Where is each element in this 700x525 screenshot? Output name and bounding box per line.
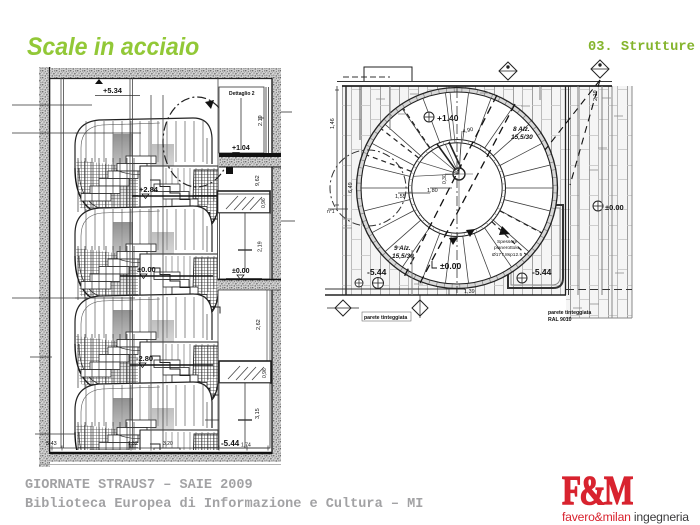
svg-text:±0.00: ±0.00: [137, 265, 156, 274]
svg-text:2.19: 2.19: [258, 115, 264, 126]
svg-text:-5.44: -5.44: [221, 439, 240, 448]
svg-text:5,43: 5,43: [46, 441, 57, 447]
svg-text:+2.84: +2.84: [139, 185, 159, 194]
svg-text:2,62: 2,62: [256, 319, 262, 330]
svg-text:0,30: 0,30: [442, 174, 448, 184]
svg-text:±0.00: ±0.00: [440, 261, 461, 271]
svg-text:1,46: 1,46: [330, 118, 336, 129]
svg-text:3,20: 3,20: [163, 441, 173, 447]
svg-text:3,15: 3,15: [255, 408, 261, 419]
svg-text:Dettaglio 2: Dettaglio 2: [229, 91, 255, 97]
svg-text:6,49: 6,49: [348, 182, 354, 193]
svg-text:-5.44: -5.44: [367, 267, 387, 277]
svg-text:-2.80: -2.80: [136, 354, 153, 363]
svg-text:9,62: 9,62: [255, 175, 261, 186]
svg-text:-5.44: -5.44: [532, 267, 552, 277]
svg-text:±0.00: ±0.00: [605, 203, 624, 212]
svg-text:2,19: 2,19: [258, 241, 264, 252]
svg-text:+1.40: +1.40: [437, 113, 459, 123]
svg-text:+1.04: +1.04: [232, 145, 250, 152]
svg-text:±0.00: ±0.00: [232, 268, 250, 275]
svg-text:1,52: 1,52: [128, 441, 138, 447]
svg-text:1,74: 1,74: [241, 443, 251, 449]
svg-text:pianerottolo: pianerottolo: [494, 245, 519, 251]
svg-text:+5.34: +5.34: [103, 86, 123, 95]
svg-text:n°1: n°1: [327, 209, 335, 215]
svg-text:parete tinteggiata: parete tinteggiata: [364, 315, 407, 321]
svg-text:1,39: 1,39: [464, 289, 475, 295]
svg-text:8 Alz.: 8 Alz.: [513, 126, 530, 133]
svg-text:0,96: 0,96: [262, 368, 268, 378]
svg-text:2,19: 2,19: [593, 90, 599, 101]
svg-text:0,96: 0,96: [261, 198, 267, 208]
svg-text:9 Alz.: 9 Alz.: [394, 245, 411, 252]
svg-text:15,5/30: 15,5/30: [511, 134, 533, 141]
svg-text:1,55: 1,55: [395, 194, 406, 200]
svg-text:15,5/30: 15,5/30: [392, 253, 414, 260]
svg-text:Ø177.8sp12.5: Ø177.8sp12.5: [492, 252, 522, 258]
svg-text:parete tinteggiata: parete tinteggiata: [548, 310, 591, 316]
svg-text:RAL 9010: RAL 9010: [548, 317, 572, 323]
